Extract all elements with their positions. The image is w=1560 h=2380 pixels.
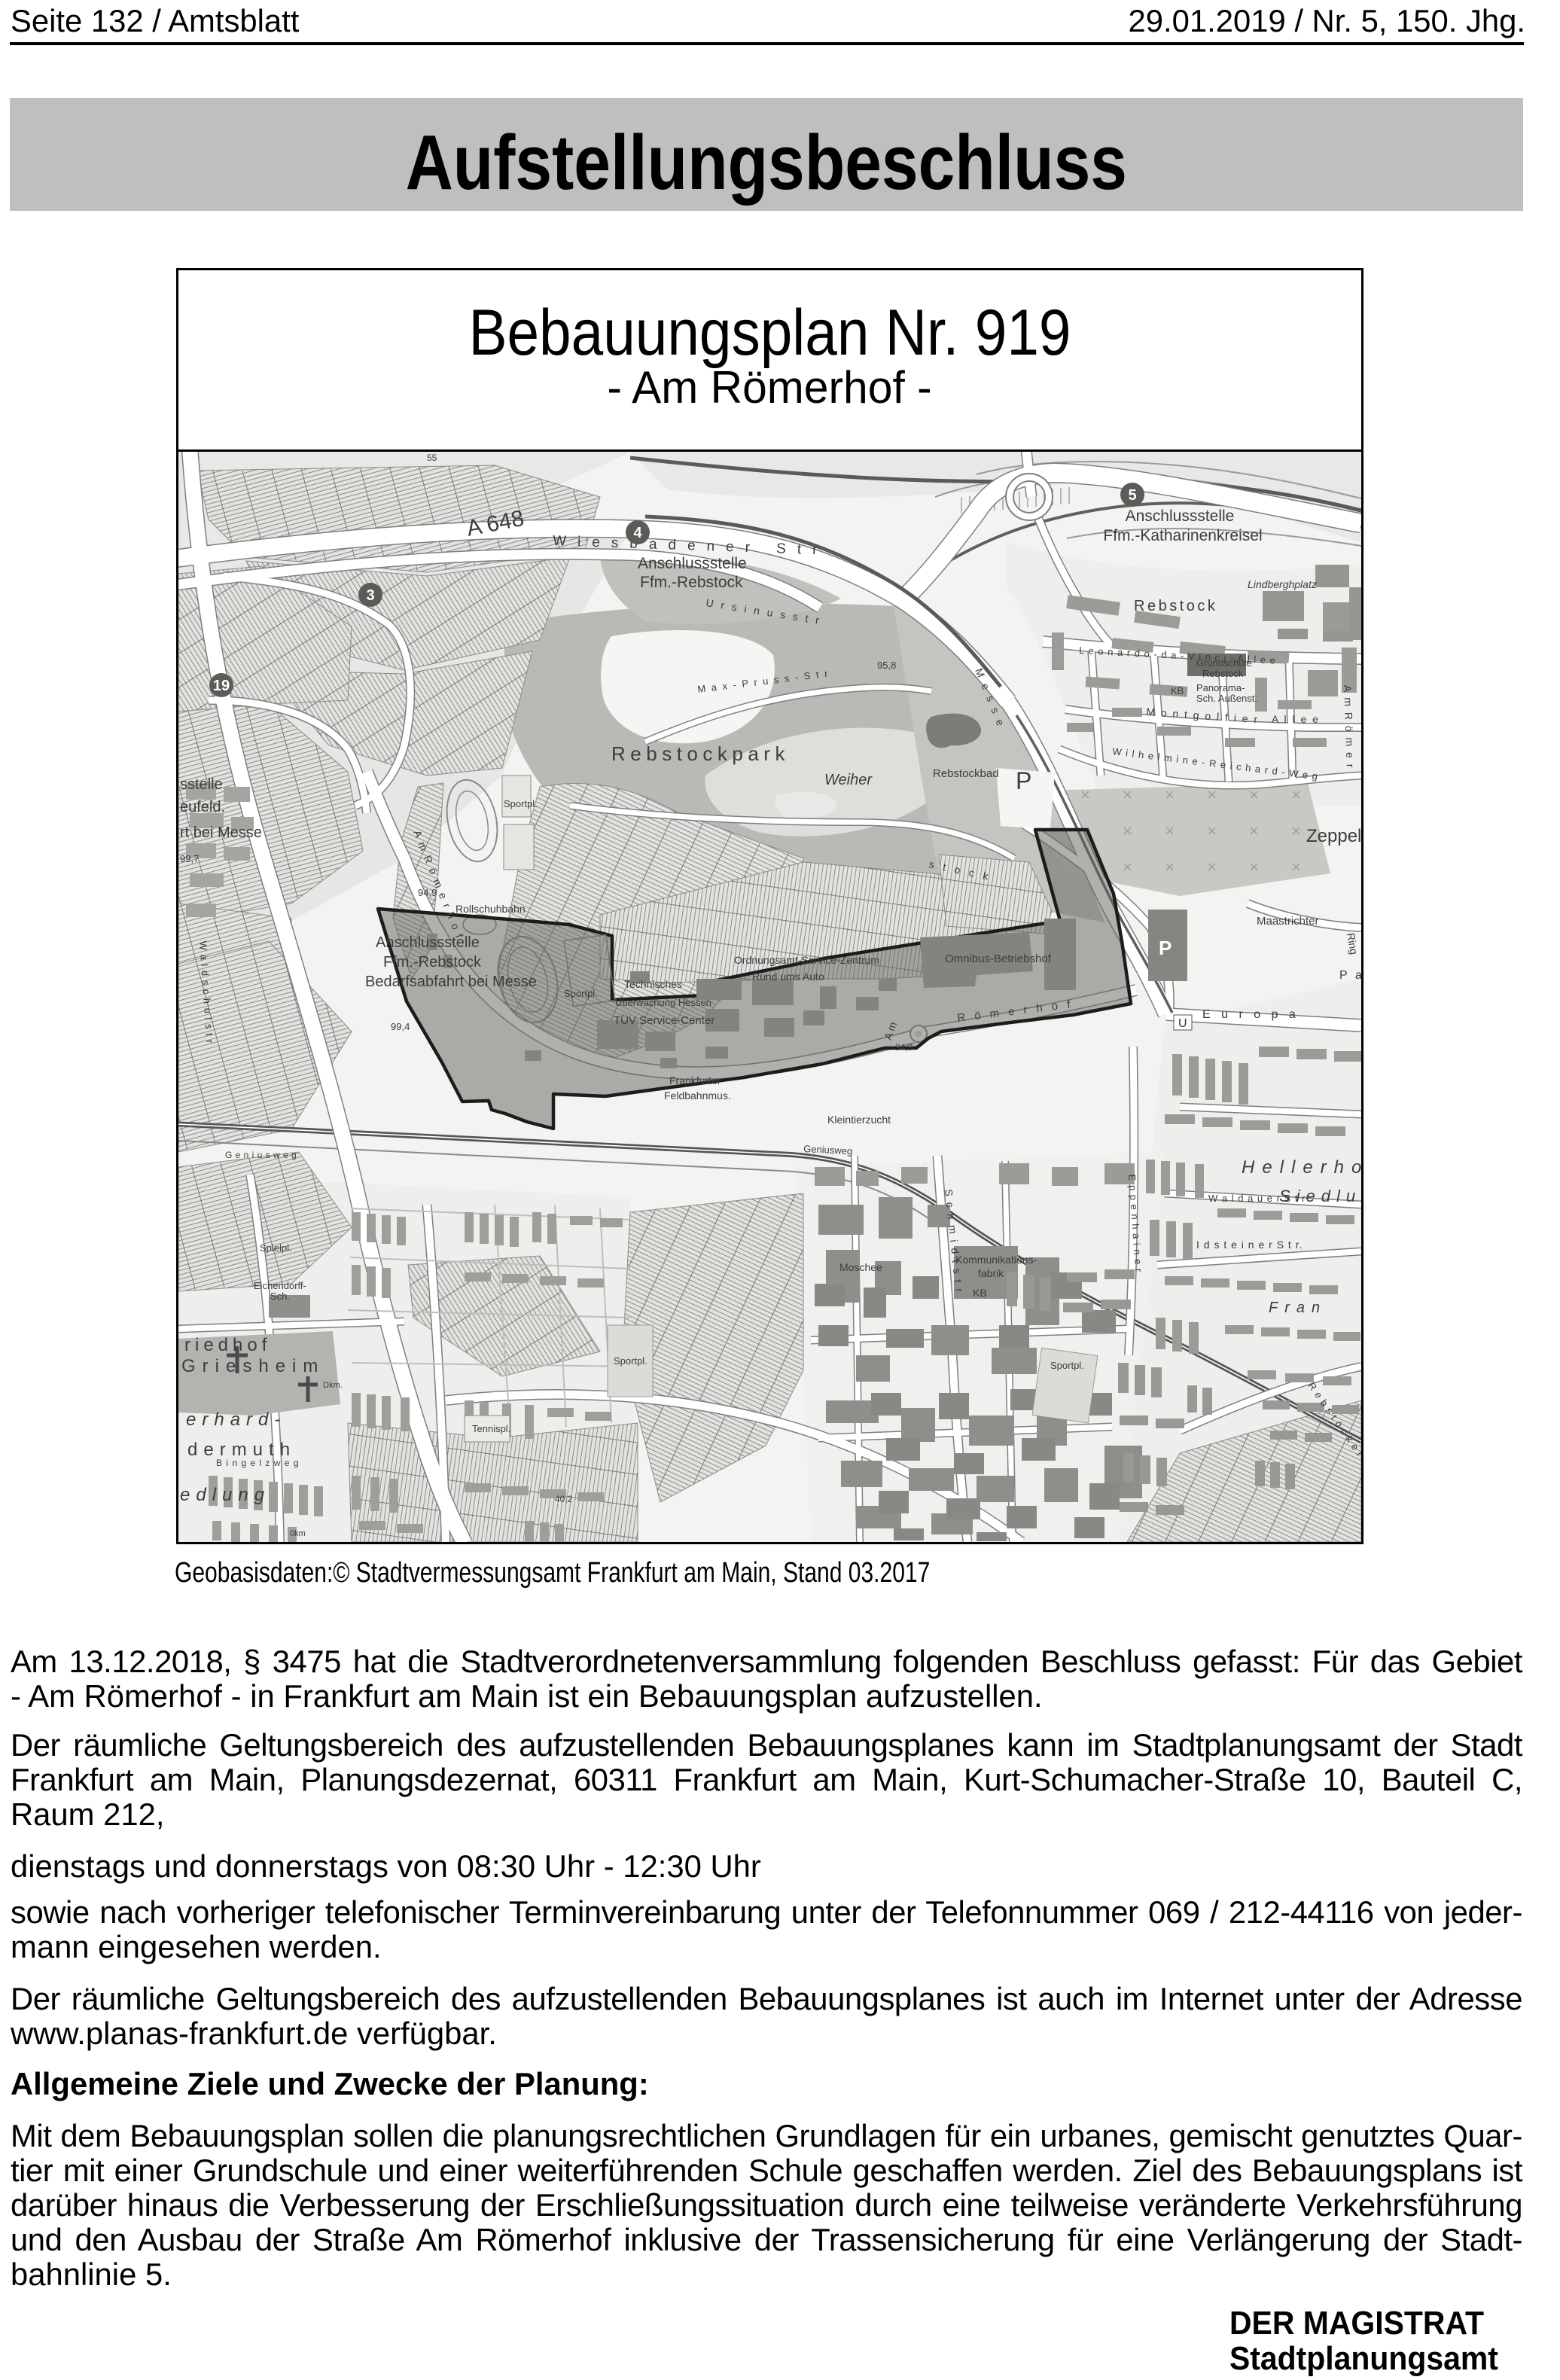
- svg-text:Rollschuhbahn: Rollschuhbahn: [456, 903, 526, 915]
- svg-text:19: 19: [213, 678, 230, 694]
- svg-text:Anschlussstelle: Anschlussstelle: [376, 934, 480, 951]
- svg-text:I d s t e i n e r S t r.: I d s t e i n e r S t r.: [1196, 1239, 1303, 1251]
- svg-text:Rebstockbad: Rebstockbad: [933, 767, 999, 780]
- svg-text:Ordnungsamt-Service-Zentrum: Ordnungsamt-Service-Zentrum: [734, 954, 879, 966]
- svg-text:Lindberghplatz: Lindberghplatz: [1248, 578, 1317, 590]
- svg-text:edlung: edlung: [180, 1485, 270, 1505]
- svg-text:Panorama-: Panorama-: [1196, 682, 1245, 693]
- svg-text:A l l e e: A l l e e: [1272, 713, 1320, 725]
- svg-text:Dkm.: Dkm.: [323, 1381, 343, 1390]
- svg-text:Sportpl.: Sportpl.: [614, 1355, 647, 1367]
- svg-text:P: P: [1159, 937, 1172, 959]
- svg-text:Omnibus-Betriebshof: Omnibus-Betriebshof: [945, 952, 1052, 965]
- svg-text:U: U: [1178, 1017, 1187, 1030]
- svg-text:0km: 0km: [290, 1529, 306, 1538]
- svg-text:Sportpl.: Sportpl.: [1050, 1360, 1084, 1371]
- svg-text:3: 3: [366, 587, 374, 604]
- svg-text:riedhof: riedhof: [184, 1335, 271, 1355]
- svg-text:Bedarfsabfahrt bei Messe: Bedarfsabfahrt bei Messe: [365, 974, 537, 990]
- svg-text:94,9: 94,9: [418, 887, 437, 898]
- svg-text:Anschlussstelle: Anschlussstelle: [1126, 507, 1235, 525]
- svg-text:55: 55: [427, 453, 437, 463]
- svg-text:P a: P a: [1339, 969, 1361, 982]
- svg-text:Sportpl.: Sportpl.: [504, 798, 538, 809]
- svg-text:Rebstockpark: Rebstockpark: [611, 742, 790, 765]
- svg-text:Überwachung Hessen: Überwachung Hessen: [615, 997, 711, 1008]
- svg-text:E u r o p a: E u r o p a: [1202, 1008, 1299, 1021]
- svg-text:40,2: 40,2: [555, 1494, 573, 1504]
- svg-text:Rund ums Auto: Rund ums Auto: [752, 971, 824, 983]
- svg-text:Rebstock: Rebstock: [1134, 598, 1217, 614]
- svg-text:Frankfurter: Frankfurter: [669, 1074, 721, 1086]
- svg-text:P: P: [1016, 767, 1031, 794]
- svg-text:B i n g e l z w e g: B i n g e l z w e g: [216, 1458, 299, 1468]
- svg-text:Sch. Außenst.: Sch. Außenst.: [1196, 693, 1257, 704]
- svg-text:KB: KB: [973, 1287, 987, 1299]
- svg-text:Ffm.-Katharinenkreisel: Ffm.-Katharinenkreisel: [1103, 527, 1262, 544]
- svg-text:94,9: 94,9: [895, 1042, 913, 1053]
- svg-text:Maastrichter: Maastrichter: [1257, 915, 1319, 928]
- svg-text:dermuth: dermuth: [187, 1440, 296, 1460]
- svg-text:Eichendorff-: Eichendorff-: [254, 1280, 306, 1291]
- svg-text:TÜV Service-Center: TÜV Service-Center: [614, 1013, 714, 1027]
- svg-text:Moschee: Moschee: [839, 1261, 882, 1273]
- svg-text:Rebstock: Rebstock: [1202, 668, 1244, 679]
- svg-text:Anschlussstelle: Anschlussstelle: [638, 555, 747, 572]
- svg-text:5: 5: [1128, 487, 1136, 504]
- svg-text:Technisches: Technisches: [624, 978, 682, 990]
- svg-text:Grundschule: Grundschule: [1196, 657, 1252, 669]
- svg-text:Feldbahnmus.: Feldbahnmus.: [664, 1089, 731, 1102]
- svg-text:Griesheim: Griesheim: [181, 1356, 324, 1376]
- svg-text:99,4: 99,4: [391, 1021, 410, 1032]
- svg-text:Fran: Fran: [1269, 1300, 1327, 1316]
- svg-text:sstelle: sstelle: [180, 776, 223, 793]
- svg-text:Tennispl.: Tennispl.: [472, 1423, 510, 1434]
- svg-text:Ffm.-Rebstock: Ffm.-Rebstock: [640, 574, 743, 591]
- svg-text:Sportpl.: Sportpl.: [564, 988, 598, 999]
- svg-text:Weiher: Weiher: [824, 772, 873, 788]
- svg-text:95,8: 95,8: [877, 660, 896, 671]
- svg-text:rt bei Messe: rt bei Messe: [180, 824, 262, 841]
- svg-text:4: 4: [633, 525, 642, 541]
- svg-text:Sch.: Sch.: [270, 1291, 290, 1302]
- svg-text:99,7: 99,7: [180, 853, 199, 864]
- svg-text:Hellerho: Hellerho: [1242, 1157, 1361, 1178]
- svg-text:Ffm.-Rebstock: Ffm.-Rebstock: [383, 954, 482, 971]
- svg-text:Kommunikations-: Kommunikations-: [955, 1254, 1037, 1266]
- svg-text:W a l d a u e r S t r: W a l d a u e r S t r: [1208, 1193, 1306, 1204]
- svg-text:eufeld.: eufeld.: [180, 799, 225, 815]
- svg-text:KB: KB: [1171, 685, 1184, 696]
- svg-text:erhard-: erhard-: [186, 1409, 286, 1430]
- svg-text:Spielpl.: Spielpl.: [260, 1242, 292, 1254]
- svg-text:G e n i u s w e g: G e n i u s w e g: [225, 1150, 297, 1160]
- svg-text:Zeppeli: Zeppeli: [1306, 826, 1361, 846]
- svg-text:Kleintierzucht: Kleintierzucht: [827, 1114, 891, 1126]
- svg-text:fabrik: fabrik: [978, 1267, 1004, 1279]
